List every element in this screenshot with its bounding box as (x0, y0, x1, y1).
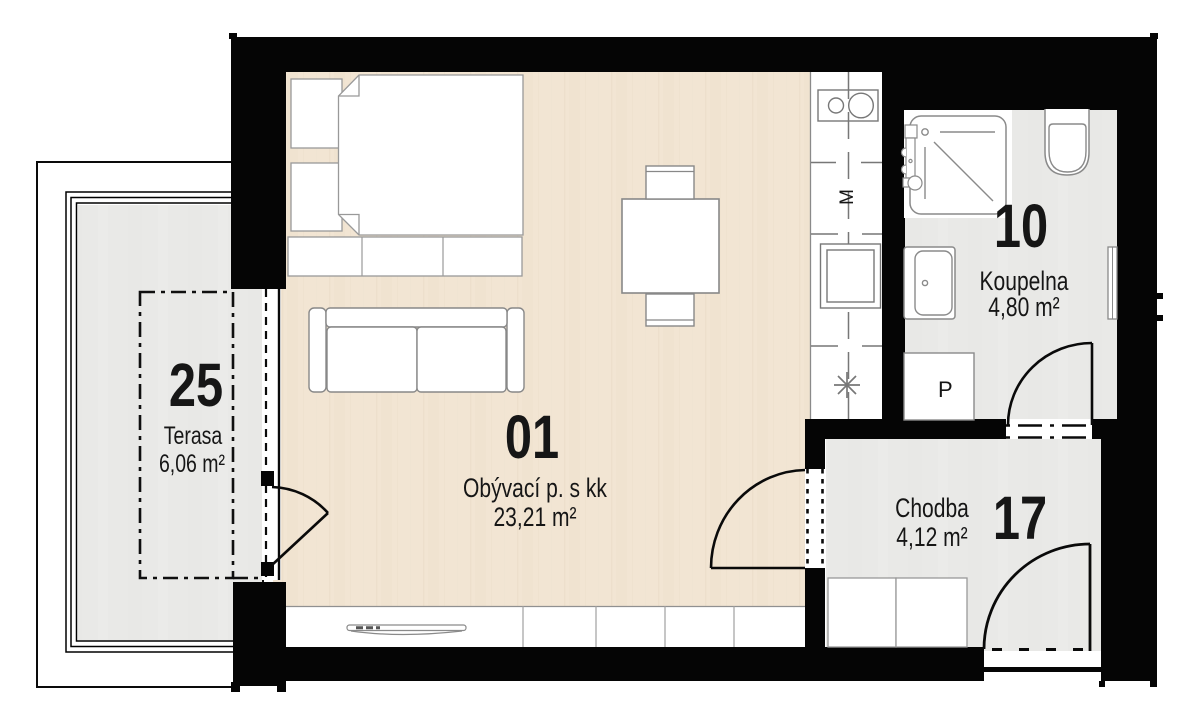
svg-text:Obývací p. s kk: Obývací p. s kk (463, 474, 608, 504)
svg-text:6,06 m²: 6,06 m² (159, 450, 226, 478)
svg-text:01: 01 (505, 403, 559, 471)
svg-text:17: 17 (993, 484, 1047, 552)
svg-text:25: 25 (169, 351, 223, 419)
svg-text:10: 10 (994, 192, 1048, 260)
svg-text:P: P (938, 377, 953, 402)
svg-text:23,21 m²: 23,21 m² (493, 503, 576, 533)
svg-text:4,80 m²: 4,80 m² (988, 293, 1059, 323)
svg-text:Chodba: Chodba (895, 494, 969, 524)
svg-text:4,12 m²: 4,12 m² (896, 523, 967, 553)
svg-text:M: M (837, 189, 858, 205)
svg-text:Terasa: Terasa (164, 422, 223, 450)
